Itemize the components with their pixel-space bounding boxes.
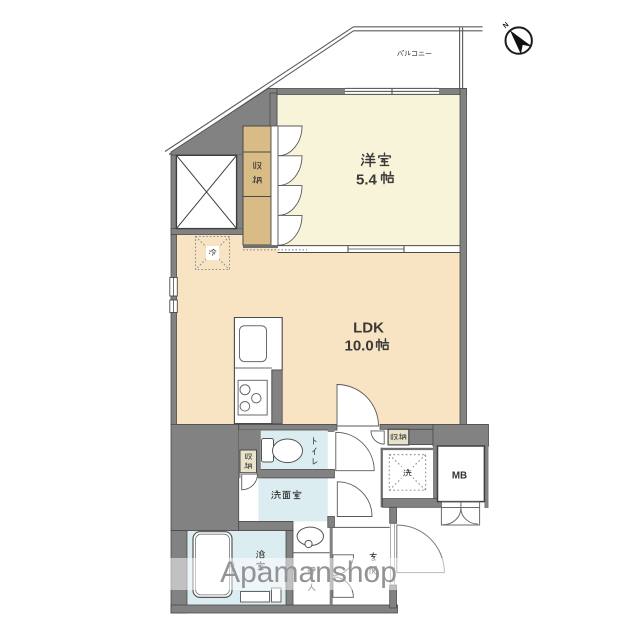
svg-text:5.4: 5.4 [356,172,378,189]
svg-text:10.0: 10.0 [345,338,374,355]
svg-text:Apamanshop: Apamanshop [220,556,397,589]
svg-text:LDK: LDK [353,320,384,337]
svg-text:MB: MB [452,471,467,482]
